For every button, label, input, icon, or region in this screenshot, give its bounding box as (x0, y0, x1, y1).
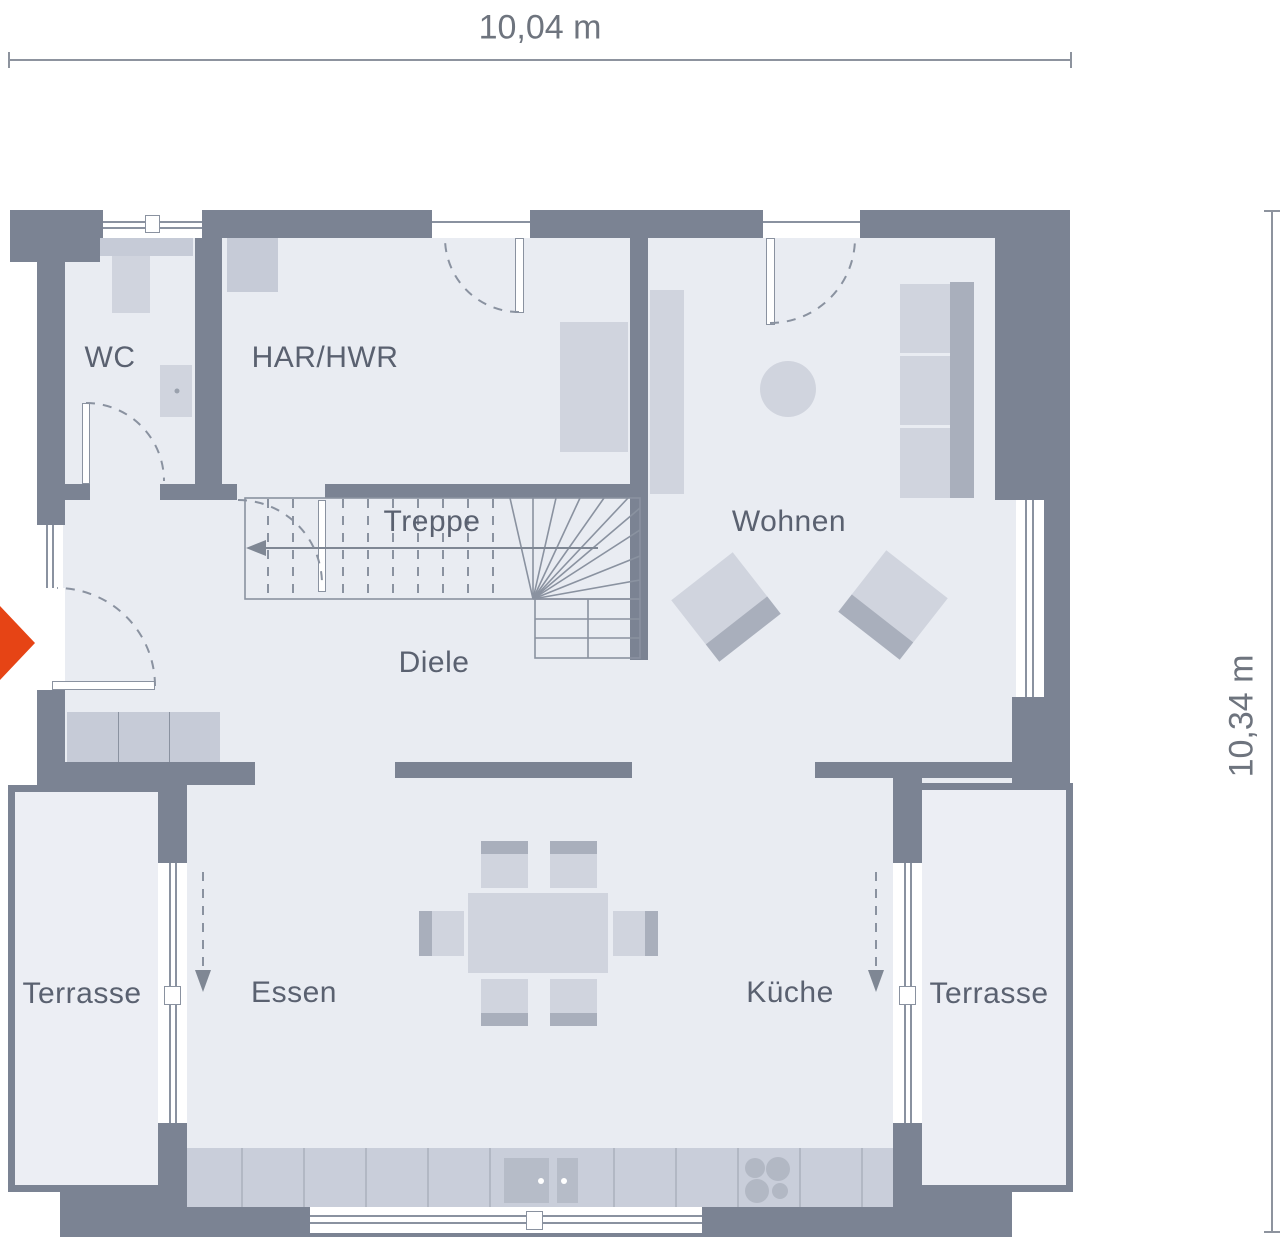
room-label-wohnen: Wohnen (732, 505, 846, 539)
sliding-direction-arrows (195, 872, 884, 992)
floor-plan: 10,04 m 10,34 m (0, 0, 1280, 1237)
room-label-terrasse-right: Terrasse (929, 977, 1048, 1011)
room-label-treppe: Treppe (384, 505, 481, 539)
room-label-kueche: Küche (746, 976, 834, 1010)
fixture-dots (175, 389, 568, 1185)
stove-burners (745, 1157, 790, 1203)
room-label-essen: Essen (251, 976, 337, 1010)
room-label-har-hwr: HAR/HWR (252, 341, 399, 375)
entrance-arrow-icon (0, 606, 35, 680)
room-label-terrasse-left: Terrasse (22, 977, 141, 1011)
room-label-wc: WC (85, 341, 136, 375)
room-label-diele: Diele (399, 646, 470, 680)
door-swing-arcs (57, 238, 855, 686)
